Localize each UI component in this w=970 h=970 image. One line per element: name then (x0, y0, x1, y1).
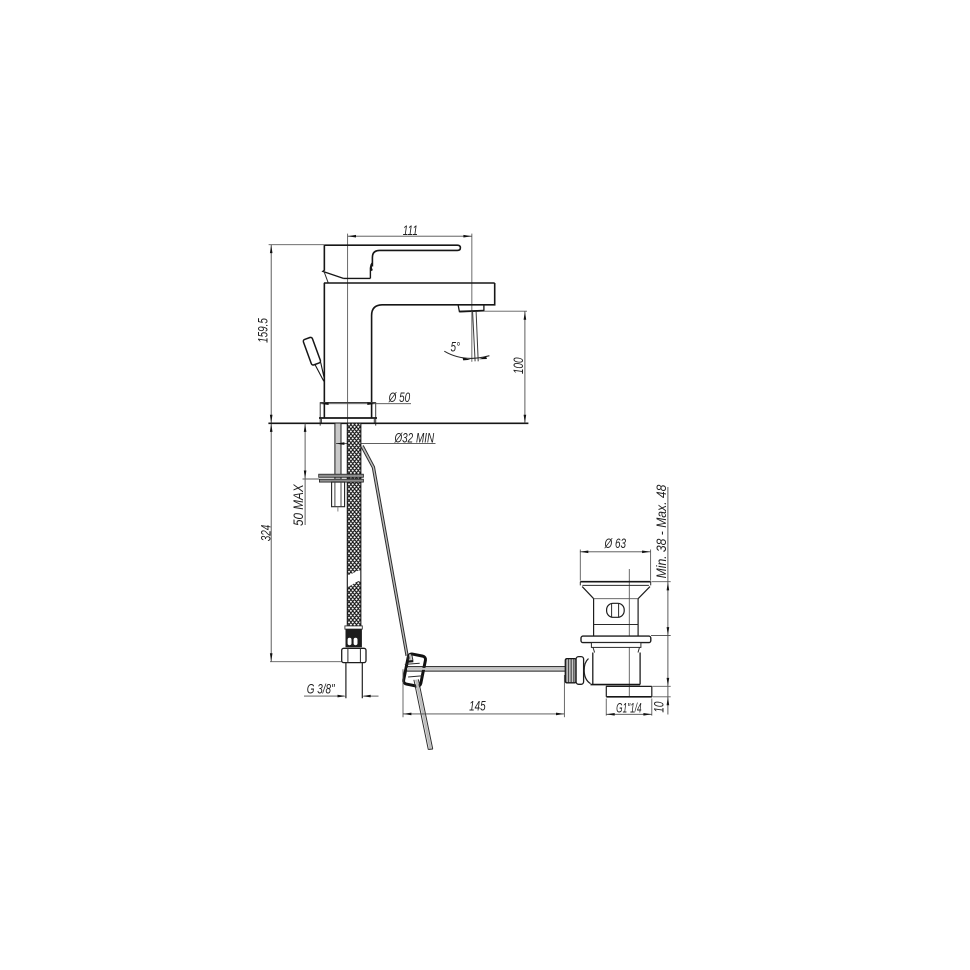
svg-text:100: 100 (510, 357, 526, 374)
svg-text:324: 324 (258, 524, 274, 541)
svg-text:Ø32 MIN: Ø32 MIN (394, 430, 435, 446)
svg-text:G 3/8": G 3/8" (307, 681, 335, 697)
svg-text:G1"1/4: G1"1/4 (616, 701, 641, 716)
svg-text:145: 145 (469, 698, 486, 714)
svg-text:Min. 38 - Max. 48: Min. 38 - Max. 48 (653, 484, 669, 578)
svg-text:159.5: 159.5 (255, 318, 271, 343)
svg-text:10: 10 (651, 701, 667, 712)
svg-text:5°: 5° (451, 339, 461, 355)
svg-text:111: 111 (403, 222, 418, 238)
svg-text:50 MAX: 50 MAX (290, 484, 306, 526)
svg-text:Ø 50: Ø 50 (388, 389, 411, 405)
svg-text:Ø 63: Ø 63 (604, 535, 627, 551)
